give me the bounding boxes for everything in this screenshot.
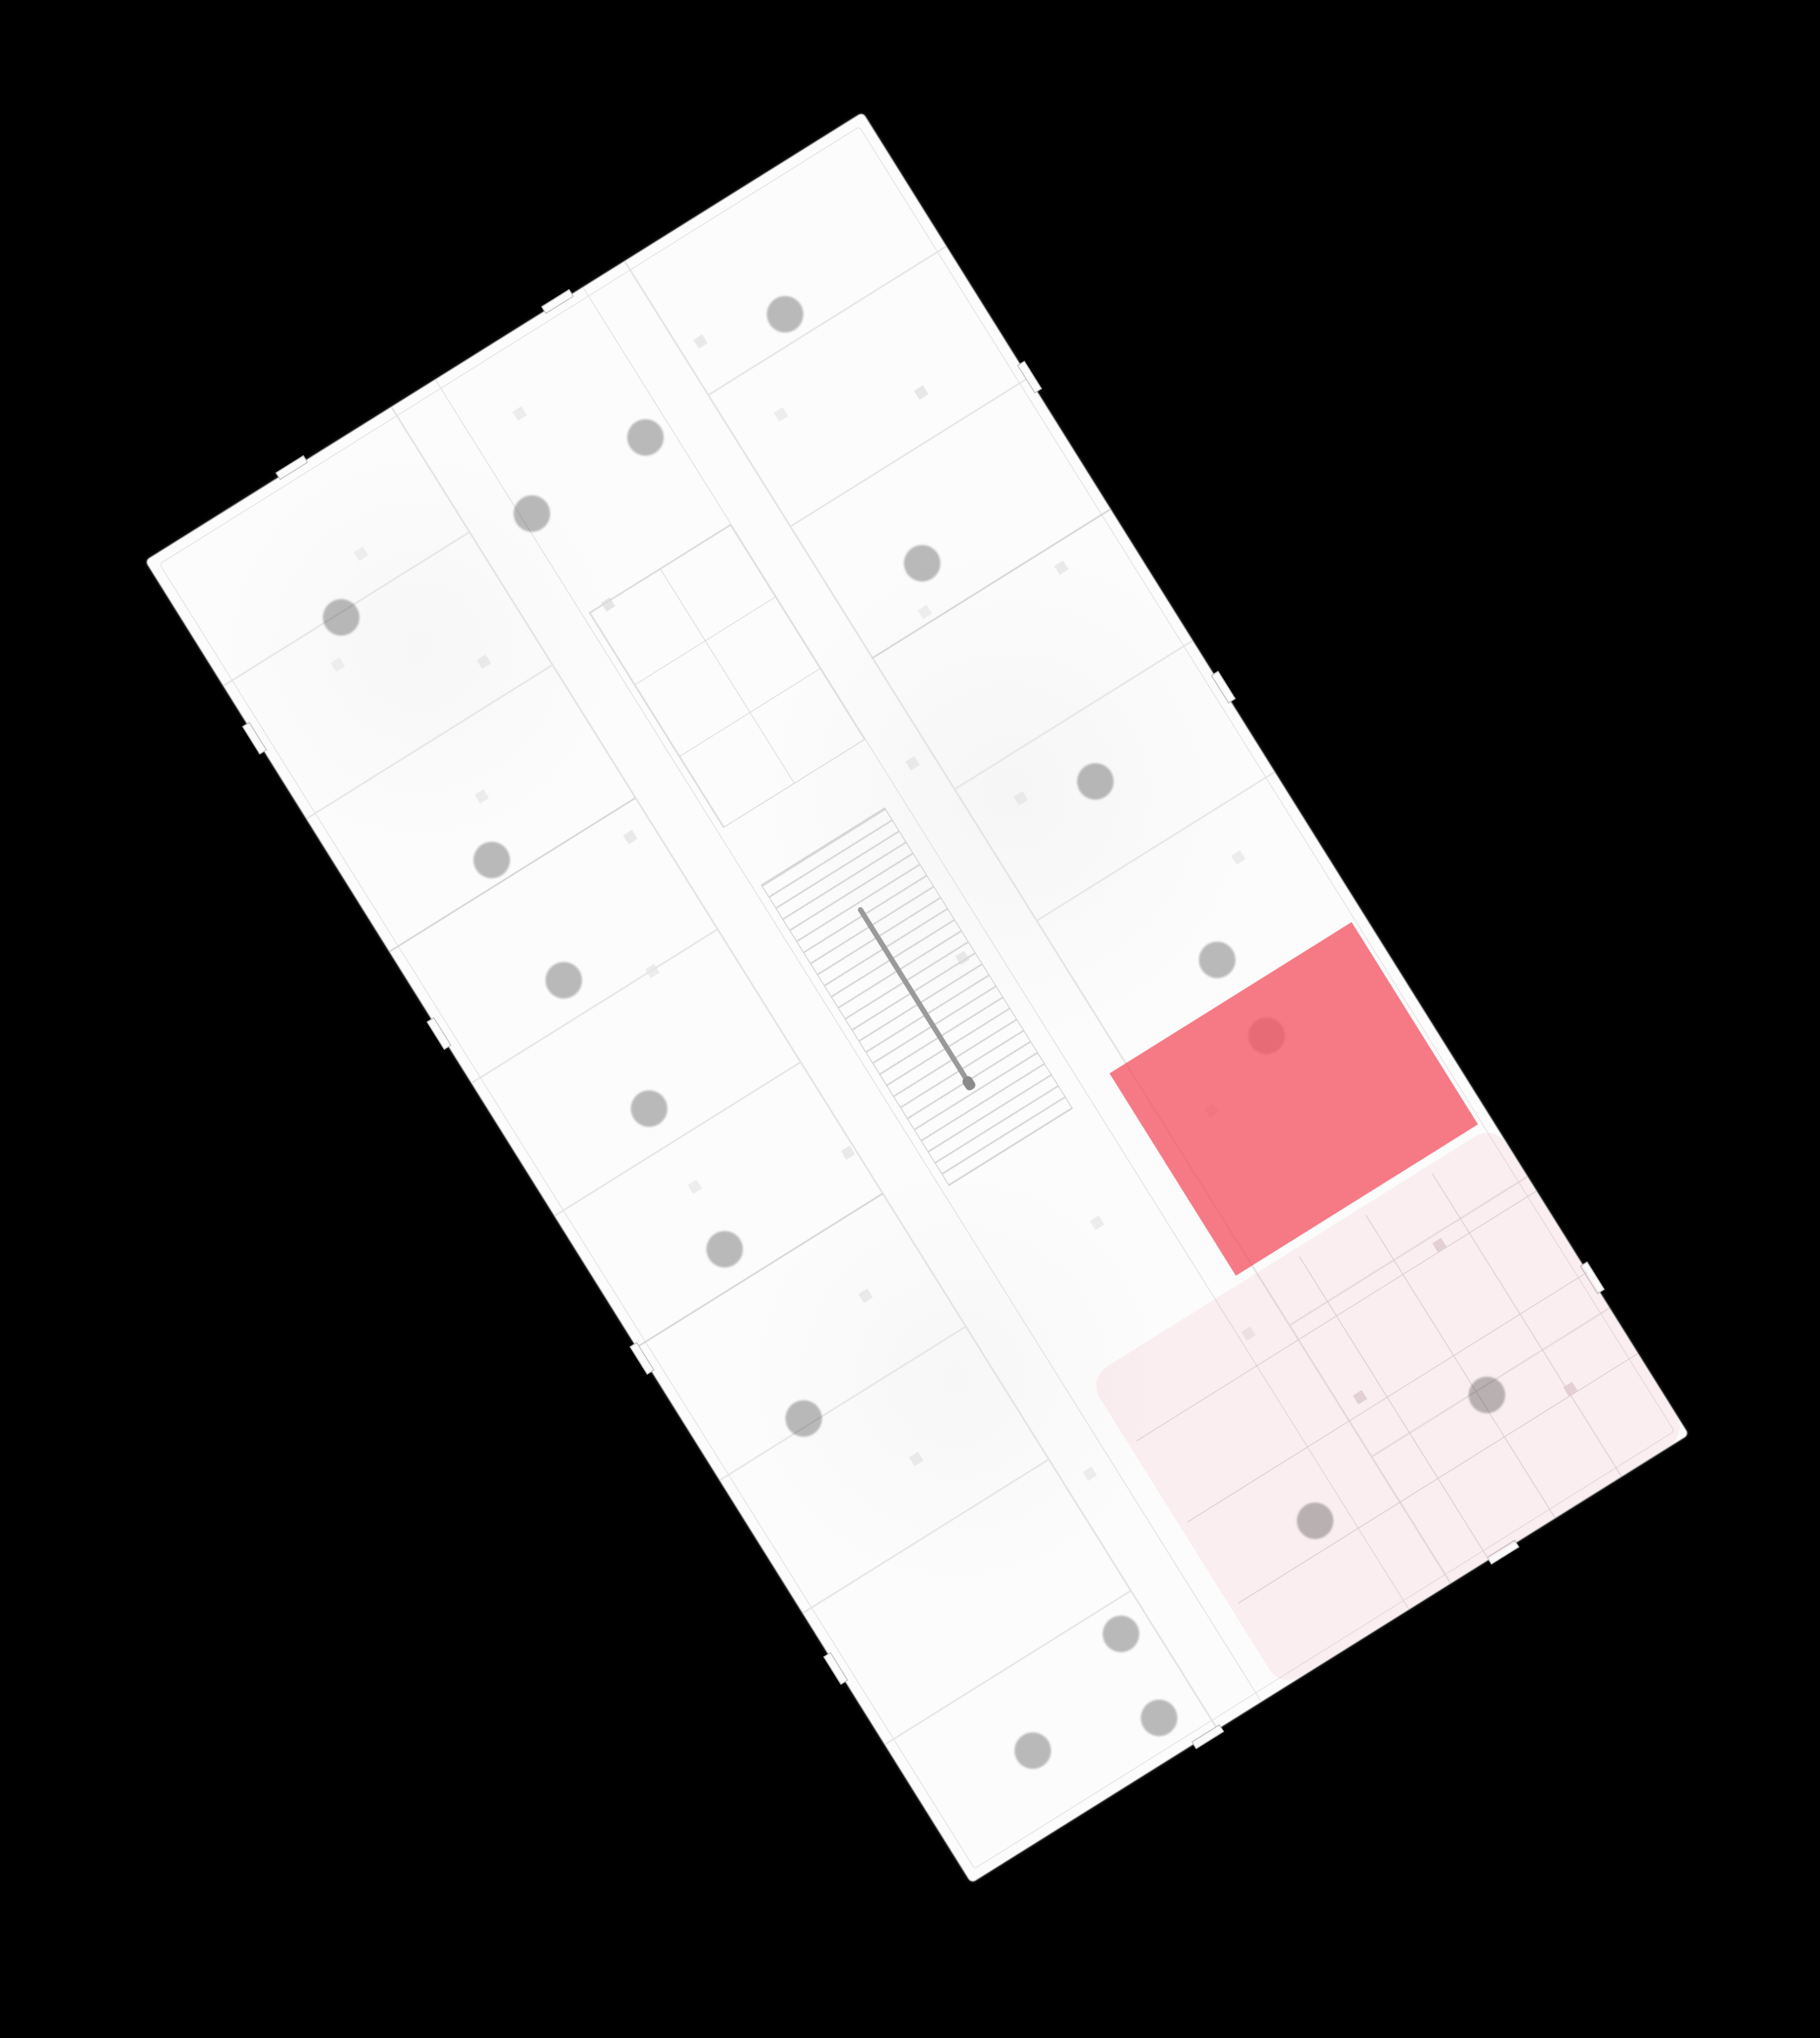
- wall-line: [624, 261, 1451, 1584]
- corridor-line: [582, 287, 1408, 1610]
- wall-line: [884, 1590, 1131, 1745]
- wall-line: [953, 640, 1192, 790]
- unit-markers-layer: [145, 113, 862, 562]
- floor-plan: [144, 111, 1689, 1883]
- wall-line: [1187, 1272, 1587, 1523]
- unit-marker-dot: [1133, 1692, 1184, 1743]
- unit-marker-dot: [1095, 1609, 1145, 1659]
- unit-marker-dot: [1192, 935, 1242, 985]
- edge-tab: [1191, 1725, 1224, 1750]
- unit-marker-dot: [507, 488, 557, 539]
- tinted-wing: [1087, 1125, 1688, 1689]
- plan-speckle-texture: [145, 555, 160, 570]
- wall-line: [871, 508, 1111, 659]
- wall-line: [1365, 1214, 1555, 1517]
- wall-line: [803, 1458, 1049, 1613]
- wall-line: [719, 1326, 965, 1481]
- unit-marker-dot: [1290, 1496, 1340, 1546]
- unit-marker-dot: [778, 1393, 829, 1443]
- unit-marker-dot: [897, 538, 947, 589]
- wall-line: [1432, 1174, 1622, 1476]
- unit-marker-dot: [1007, 1725, 1058, 1776]
- wall-line: [707, 246, 946, 396]
- canvas-background: [0, 0, 1820, 2038]
- edge-tab: [1487, 1540, 1520, 1565]
- unit-marker-dot: [699, 1224, 749, 1275]
- wall-line: [391, 407, 1218, 1729]
- unit-marker-dot: [623, 1083, 674, 1133]
- wall-line: [471, 929, 717, 1084]
- wall-line: [554, 1061, 801, 1216]
- elevator-shaft-grid: [588, 524, 865, 828]
- edge-tab: [823, 1652, 848, 1685]
- unit-marker-dot: [620, 413, 670, 463]
- edge-tab: [1211, 671, 1236, 704]
- unit-marker-dot: [1461, 1369, 1512, 1420]
- unit-marker-dot: [760, 289, 810, 340]
- edge-tab: [426, 1017, 452, 1050]
- highlighted-unit[interactable]: [1109, 922, 1477, 1275]
- wall-line: [306, 664, 552, 819]
- wall-line: [789, 377, 1028, 528]
- wall-line: [1035, 771, 1274, 922]
- edge-tab: [541, 289, 574, 314]
- corridor-line: [434, 380, 1260, 1702]
- edge-tab: [275, 455, 308, 481]
- wall-line: [1238, 1353, 1637, 1604]
- edge-tab: [1580, 1261, 1605, 1295]
- wall-line: [389, 797, 635, 952]
- unit-marker-dot: [538, 955, 588, 1006]
- unit-marker-dot: [1070, 757, 1120, 807]
- edge-tab: [242, 722, 267, 755]
- edge-tab: [1017, 360, 1042, 393]
- edge-tab: [629, 1342, 655, 1375]
- wall-line: [636, 1193, 883, 1348]
